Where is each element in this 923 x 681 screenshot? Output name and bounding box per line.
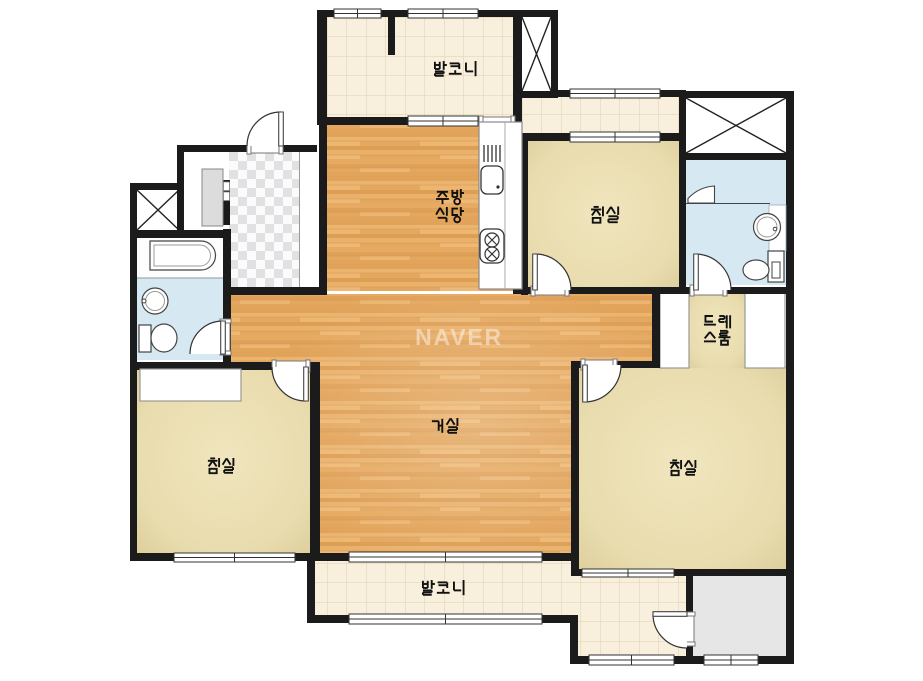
- svg-text:NAVER: NAVER: [415, 324, 503, 350]
